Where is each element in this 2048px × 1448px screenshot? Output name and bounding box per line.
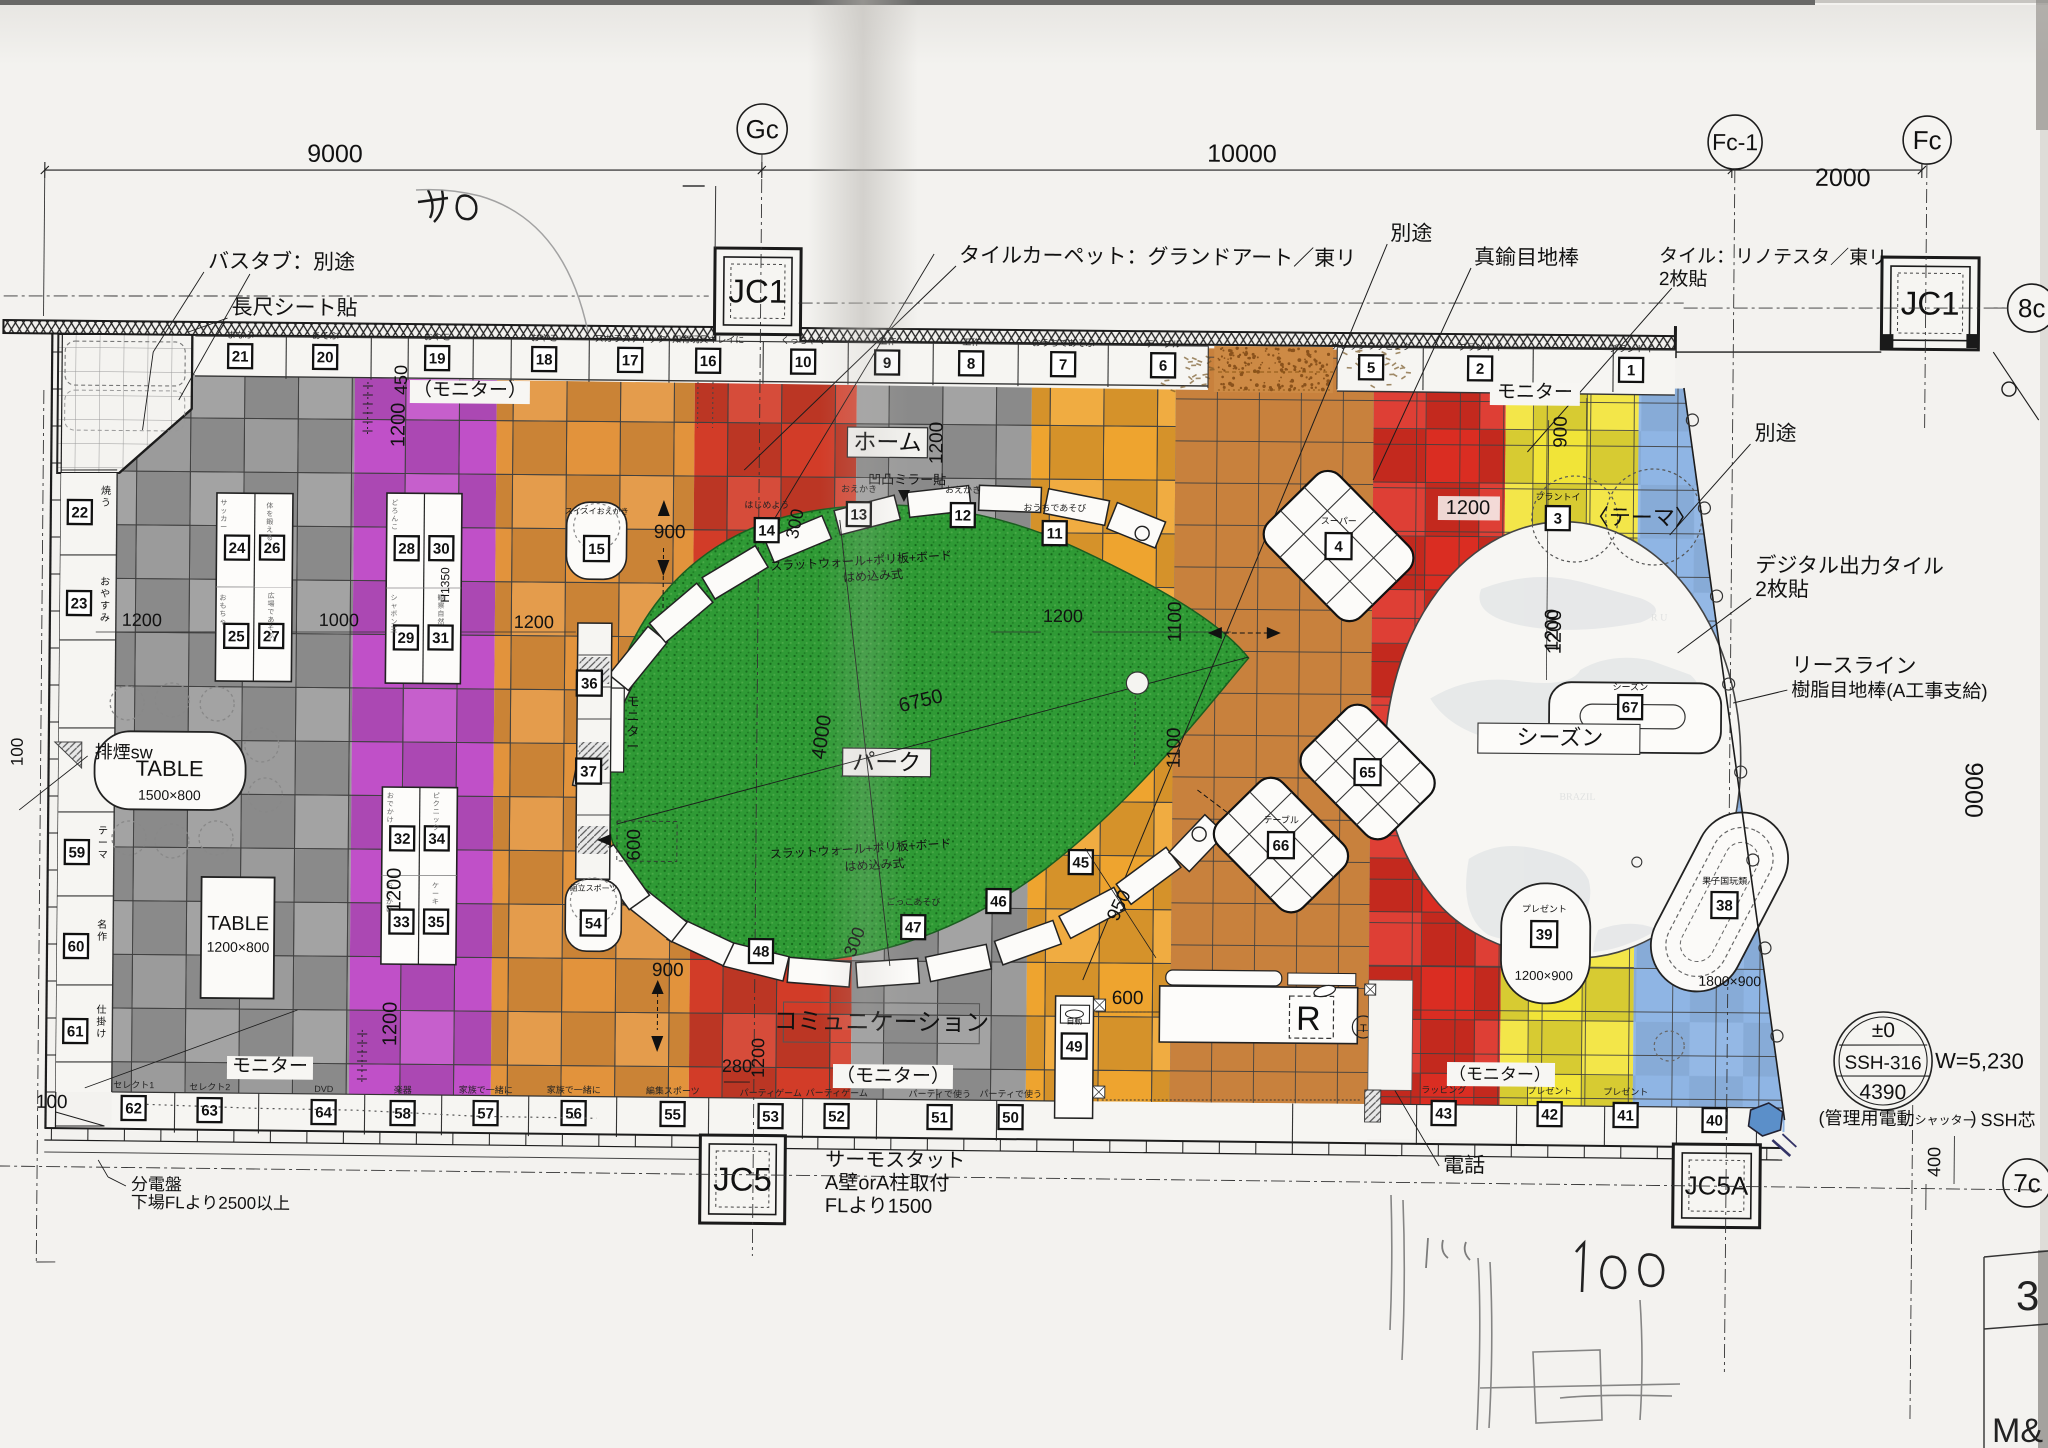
- svg-text:バスタブ：別途: バスタブ：別途: [208, 250, 355, 274]
- svg-text:シ: シ: [391, 595, 398, 602]
- svg-text:体: 体: [266, 501, 273, 510]
- svg-text:16: 16: [700, 353, 717, 370]
- svg-text:1100: 1100: [1164, 727, 1185, 768]
- svg-text:24: 24: [229, 540, 246, 557]
- svg-text:8: 8: [967, 356, 975, 373]
- svg-text:R: R: [1296, 1000, 1321, 1038]
- svg-text:で: で: [267, 609, 274, 616]
- svg-text:デジタル出力タイル: デジタル出力タイル: [1755, 554, 1944, 579]
- svg-text:JC1: JC1: [1901, 284, 1960, 322]
- svg-text:3: 3: [2016, 1272, 2039, 1319]
- svg-text:600: 600: [624, 829, 645, 861]
- svg-text:1200: 1200: [387, 403, 409, 448]
- svg-text:モニター: モニター: [232, 1055, 308, 1078]
- svg-text:ッ: ッ: [220, 508, 227, 515]
- svg-text:パーティゲーム: パーティゲーム: [806, 1087, 868, 1099]
- svg-text:組立スポーツ: 組立スポーツ: [570, 883, 618, 893]
- svg-text:お: お: [220, 594, 227, 602]
- svg-text:34: 34: [428, 831, 445, 848]
- svg-text:57: 57: [477, 1105, 494, 1122]
- svg-text:400: 400: [1924, 1147, 1944, 1177]
- svg-text:玉: 玉: [390, 626, 397, 634]
- svg-text:別途: 別途: [1390, 222, 1432, 245]
- svg-text:焼: 焼: [101, 485, 111, 497]
- svg-text:で: で: [387, 801, 394, 808]
- svg-text:あ: あ: [267, 616, 274, 624]
- svg-text:32: 32: [394, 831, 411, 848]
- svg-text:ボ: ボ: [390, 610, 397, 618]
- svg-text:〈テーマ〉: 〈テーマ〉: [1587, 505, 1697, 531]
- svg-text:9000: 9000: [1959, 762, 1987, 818]
- svg-text:ろ: ろ: [391, 507, 398, 515]
- svg-text:別途: 別途: [1754, 422, 1796, 445]
- svg-text:900: 900: [654, 522, 686, 543]
- svg-text:JC5: JC5: [713, 1160, 772, 1198]
- svg-text:ン: ン: [390, 619, 397, 626]
- svg-text:41: 41: [1617, 1107, 1634, 1124]
- svg-text:おやこ: おやこ: [531, 333, 558, 343]
- svg-text:広: 広: [268, 591, 275, 600]
- svg-text:28: 28: [398, 541, 415, 558]
- svg-text:ケ: ケ: [432, 882, 439, 890]
- svg-text:スイスイおえかき: スイスイおえかき: [565, 507, 629, 517]
- svg-text:ニ: ニ: [626, 709, 639, 724]
- svg-text:お: お: [387, 792, 394, 800]
- svg-text:おえかき: おえかき: [945, 485, 981, 495]
- svg-text:61: 61: [67, 1023, 84, 1040]
- svg-text:1200: 1200: [748, 1038, 768, 1078]
- svg-text:8c: 8c: [2018, 293, 2046, 323]
- svg-text:サ: サ: [220, 499, 227, 507]
- svg-text:JC5A: JC5A: [1685, 1170, 1749, 1201]
- svg-text:23: 23: [71, 595, 88, 612]
- svg-text:15: 15: [588, 541, 605, 558]
- svg-text:55: 55: [664, 1106, 681, 1123]
- svg-text:おうちであそぶ: おうちであそぶ: [1032, 338, 1095, 349]
- svg-text:900: 900: [1550, 416, 1571, 448]
- svg-text:T: T: [1360, 1023, 1367, 1035]
- svg-text:セレクト1: セレクト1: [113, 1080, 154, 1090]
- svg-text:10: 10: [795, 354, 812, 371]
- svg-text:テーブル: テーブル: [1146, 338, 1182, 349]
- svg-text:33: 33: [393, 914, 410, 931]
- svg-text:シーズン: シーズン: [1613, 681, 1649, 692]
- svg-text:仕: 仕: [96, 1003, 106, 1016]
- svg-text:14: 14: [758, 522, 775, 539]
- svg-text:キ: キ: [432, 899, 439, 906]
- svg-text:う: う: [101, 497, 111, 509]
- svg-text:プラントイ: プラントイ: [1535, 492, 1580, 502]
- svg-text:600: 600: [1112, 988, 1144, 1009]
- svg-text:真鍮目地棒: 真鍮目地棒: [1474, 246, 1579, 270]
- svg-text:A壁orA柱取付: A壁orA柱取付: [825, 1171, 950, 1195]
- svg-text:56: 56: [565, 1105, 582, 1122]
- svg-text:ャ: ャ: [390, 603, 397, 610]
- svg-text:42: 42: [1541, 1106, 1558, 1123]
- svg-text:30: 30: [433, 541, 450, 558]
- svg-text:6: 6: [1159, 358, 1167, 375]
- svg-text:22: 22: [71, 504, 88, 521]
- svg-text:): ): [1971, 1108, 1977, 1128]
- svg-text:64: 64: [315, 1104, 332, 1121]
- svg-text:36: 36: [581, 675, 598, 692]
- svg-text:掛: 掛: [96, 1015, 106, 1028]
- svg-text:果子国玩類: 果子国玩類: [1702, 876, 1747, 886]
- svg-text:19: 19: [429, 350, 446, 367]
- svg-text:タイル：リノテスタ／東リ: タイル：リノテスタ／東リ: [1659, 245, 1887, 269]
- svg-text:はじめよう: はじめよう: [744, 500, 789, 510]
- svg-text:20: 20: [317, 349, 334, 366]
- svg-text:58: 58: [394, 1105, 411, 1122]
- svg-text:37: 37: [580, 763, 597, 780]
- svg-text:場: 場: [267, 599, 274, 608]
- svg-text:ち: ち: [219, 610, 226, 618]
- svg-text:ぶ: ぶ: [267, 632, 274, 640]
- svg-text:お: お: [100, 576, 110, 588]
- svg-text:59: 59: [68, 844, 85, 861]
- svg-text:ゃ: ゃ: [219, 619, 226, 626]
- svg-text:こ: こ: [391, 523, 398, 531]
- svg-text:ー: ー: [98, 838, 108, 849]
- svg-text:1500×800: 1500×800: [138, 787, 201, 804]
- svg-text:7c: 7c: [2013, 1168, 2041, 1198]
- svg-text:リースライン: リースライン: [1791, 654, 1916, 678]
- svg-text:プラントイ: プラントイ: [1458, 342, 1503, 352]
- svg-text:43: 43: [1435, 1105, 1452, 1122]
- svg-text:楽器: 楽器: [394, 1084, 412, 1095]
- svg-text:樹脂目地棒(A工事支給): 樹脂目地棒(A工事支給): [1791, 679, 1988, 703]
- svg-text:1000: 1000: [319, 610, 359, 630]
- svg-text:長尺シート貼: 長尺シート貼: [232, 296, 358, 320]
- svg-text:ど: ど: [391, 499, 398, 507]
- svg-text:SSH-316: SSH-316: [1844, 1053, 1921, 1075]
- svg-text:タイルカーペット：グランドアート／東リ: タイルカーペット：グランドアート／東リ: [959, 244, 1356, 270]
- svg-text:46: 46: [990, 893, 1007, 910]
- svg-text:63: 63: [201, 1102, 218, 1119]
- svg-text:ピ: ピ: [433, 792, 440, 800]
- svg-text:モニター: モニター: [1497, 381, 1573, 404]
- svg-text:ッ: ッ: [433, 817, 440, 824]
- svg-text:H1350: H1350: [438, 567, 452, 603]
- svg-text:る: る: [266, 534, 273, 542]
- svg-text:す: す: [100, 600, 110, 612]
- svg-text:10000: 10000: [1207, 140, 1277, 169]
- svg-text:（モニター）: （モニター）: [1449, 1065, 1551, 1085]
- svg-text:31: 31: [432, 630, 449, 647]
- svg-text:60: 60: [68, 938, 85, 955]
- svg-text:家族で一緒に: 家族で一緒に: [459, 1084, 513, 1095]
- svg-text:あそぶ: あそぶ: [312, 331, 339, 341]
- svg-text:1200: 1200: [379, 1002, 401, 1047]
- svg-text:え: え: [266, 526, 273, 534]
- svg-text:1200: 1200: [1043, 606, 1083, 626]
- svg-text:み: み: [100, 613, 110, 624]
- svg-text:39: 39: [1536, 926, 1553, 943]
- svg-text:ク: ク: [433, 824, 440, 832]
- svg-text:そ: そ: [267, 624, 274, 632]
- svg-text:1100: 1100: [1165, 601, 1186, 642]
- svg-text:(管理用電動: (管理用電動: [1819, 1108, 1915, 1129]
- svg-text:100: 100: [36, 1092, 68, 1113]
- svg-text:シーズン: シーズン: [1516, 725, 1603, 751]
- svg-text:テーブル: テーブル: [1263, 814, 1299, 825]
- svg-text:カ: カ: [220, 515, 227, 523]
- svg-text:マ: マ: [98, 850, 108, 861]
- svg-text:51: 51: [931, 1109, 948, 1126]
- svg-text:自: 自: [437, 609, 444, 618]
- svg-text:2: 2: [1476, 361, 1484, 378]
- svg-text:7: 7: [1059, 357, 1067, 374]
- svg-text:1800×900: 1800×900: [1698, 973, 1761, 990]
- svg-text:Fc-1: Fc-1: [1712, 129, 1758, 155]
- svg-text:1200: 1200: [122, 610, 162, 630]
- svg-text:1200: 1200: [1446, 497, 1491, 519]
- svg-text:か: か: [387, 808, 394, 816]
- svg-text:65: 65: [1359, 764, 1376, 781]
- svg-text:分電盤: 分電盤: [131, 1175, 182, 1194]
- svg-text:100: 100: [8, 738, 27, 767]
- svg-text:M&: M&: [1992, 1412, 2043, 1448]
- svg-text:2000: 2000: [1815, 164, 1871, 192]
- svg-text:工作: 工作: [962, 336, 980, 347]
- svg-text:家族で一緒に: 家族で一緒に: [547, 1084, 601, 1095]
- svg-text:4: 4: [1334, 539, 1343, 556]
- svg-text:±0: ±0: [1872, 1019, 1895, 1042]
- svg-text:1200: 1200: [926, 422, 947, 464]
- svg-text:タ: タ: [626, 724, 639, 739]
- svg-text:40: 40: [1706, 1112, 1723, 1129]
- svg-text:や: や: [100, 588, 110, 600]
- svg-text:然: 然: [437, 617, 444, 626]
- svg-text:プレゼント: プレゼント: [1522, 903, 1567, 914]
- svg-text:モ: モ: [627, 694, 640, 709]
- svg-text:まなぶ: まなぶ: [227, 330, 254, 340]
- svg-text:35: 35: [428, 914, 445, 931]
- svg-text:53: 53: [762, 1108, 779, 1125]
- svg-text:R U: R U: [1651, 612, 1668, 623]
- svg-text:作: 作: [97, 931, 107, 943]
- svg-text:1200: 1200: [514, 612, 554, 632]
- svg-text:18: 18: [536, 351, 553, 368]
- svg-text:9000: 9000: [307, 140, 363, 168]
- svg-text:DVD: DVD: [314, 1084, 334, 1094]
- svg-text:（モニター）: （モニター）: [836, 1064, 950, 1087]
- svg-text:ー: ー: [220, 524, 227, 531]
- svg-text:11: 11: [1047, 525, 1063, 542]
- svg-text:ク: ク: [433, 800, 440, 808]
- svg-text:48: 48: [753, 943, 770, 960]
- svg-text:け: け: [387, 816, 394, 824]
- svg-text:を: を: [266, 510, 273, 518]
- svg-text:下場FLより2500以上: 下場FLより2500以上: [131, 1193, 290, 1213]
- svg-text:2枚貼: 2枚貼: [1659, 268, 1708, 290]
- svg-text:ー: ー: [432, 891, 439, 898]
- svg-text:50: 50: [1002, 1109, 1019, 1126]
- svg-text:26: 26: [264, 540, 281, 557]
- svg-text:5: 5: [1367, 360, 1375, 377]
- svg-text:JC1: JC1: [728, 272, 787, 310]
- svg-text:サーモスタット: サーモスタット: [825, 1148, 965, 1172]
- svg-text:セレクト2: セレクト2: [189, 1082, 230, 1092]
- svg-text:自動: 自動: [1066, 1016, 1082, 1026]
- svg-text:2枚貼: 2枚貼: [1755, 578, 1809, 601]
- svg-text:シャッター: シャッター: [1915, 1113, 1975, 1128]
- svg-text:BRAZIL: BRAZIL: [1559, 792, 1595, 803]
- svg-text:テ: テ: [98, 826, 108, 837]
- svg-text:名: 名: [97, 918, 107, 931]
- svg-text:450: 450: [391, 365, 411, 395]
- svg-text:TABLE: TABLE: [207, 913, 269, 936]
- svg-text:52: 52: [828, 1108, 845, 1125]
- svg-text:スーパー: スーパー: [1321, 516, 1357, 526]
- svg-text:プレゼント: プレゼント: [1603, 1086, 1648, 1097]
- svg-text:け: け: [96, 1028, 106, 1040]
- svg-text:電話: 電話: [1443, 1154, 1485, 1177]
- svg-text:Gc: Gc: [745, 114, 778, 144]
- svg-text:25: 25: [228, 628, 245, 645]
- svg-text:38: 38: [1716, 897, 1733, 914]
- svg-text:パーティで使う: パーティで使う: [979, 1088, 1042, 1100]
- svg-text:62: 62: [125, 1100, 142, 1117]
- svg-text:（モニター）: （モニター）: [413, 378, 527, 401]
- svg-text:鍛: 鍛: [266, 517, 273, 526]
- svg-text:12: 12: [954, 507, 971, 524]
- svg-text:54: 54: [585, 915, 602, 932]
- svg-text:スカラスティック: スカラスティック: [595, 334, 666, 345]
- svg-text:ー: ー: [626, 739, 639, 754]
- svg-text:49: 49: [1066, 1038, 1083, 1055]
- svg-text:くっちゃく: くっちゃく: [781, 335, 826, 345]
- svg-text:45: 45: [1072, 854, 1089, 871]
- svg-text:66: 66: [1273, 837, 1290, 854]
- svg-text:29: 29: [398, 630, 415, 647]
- svg-text:ん: ん: [391, 515, 398, 523]
- svg-text:おやこ: おやこ: [424, 332, 451, 342]
- svg-text:Fc: Fc: [1913, 125, 1942, 155]
- svg-text:排煙sw: 排煙sw: [95, 742, 154, 763]
- svg-text:SSH芯: SSH芯: [1980, 1110, 2035, 1130]
- svg-text:4390: 4390: [1859, 1081, 1906, 1104]
- svg-text:1200: 1200: [383, 868, 405, 913]
- svg-text:パーティで使う: パーティで使う: [908, 1088, 971, 1100]
- svg-text:3: 3: [1554, 511, 1562, 528]
- svg-text:1200: 1200: [1542, 609, 1563, 651]
- svg-text:も: も: [219, 602, 226, 610]
- svg-text:ニ: ニ: [433, 809, 440, 816]
- svg-text:17: 17: [622, 352, 639, 369]
- svg-text:パーティゲーム: パーティゲーム: [740, 1087, 802, 1099]
- svg-text:1200×800: 1200×800: [207, 939, 270, 956]
- svg-text:1: 1: [1627, 362, 1635, 379]
- svg-text:900: 900: [652, 960, 684, 981]
- svg-text:67: 67: [1622, 699, 1639, 716]
- svg-text:21: 21: [232, 348, 249, 365]
- svg-text:1200×900: 1200×900: [1515, 968, 1573, 984]
- svg-text:FLより1500: FLより1500: [825, 1195, 933, 1218]
- svg-text:W=5,230: W=5,230: [1935, 1048, 2024, 1074]
- svg-text:編集スポーツ: 編集スポーツ: [646, 1085, 700, 1096]
- svg-text:おうちであそび: おうちであそび: [1023, 503, 1086, 514]
